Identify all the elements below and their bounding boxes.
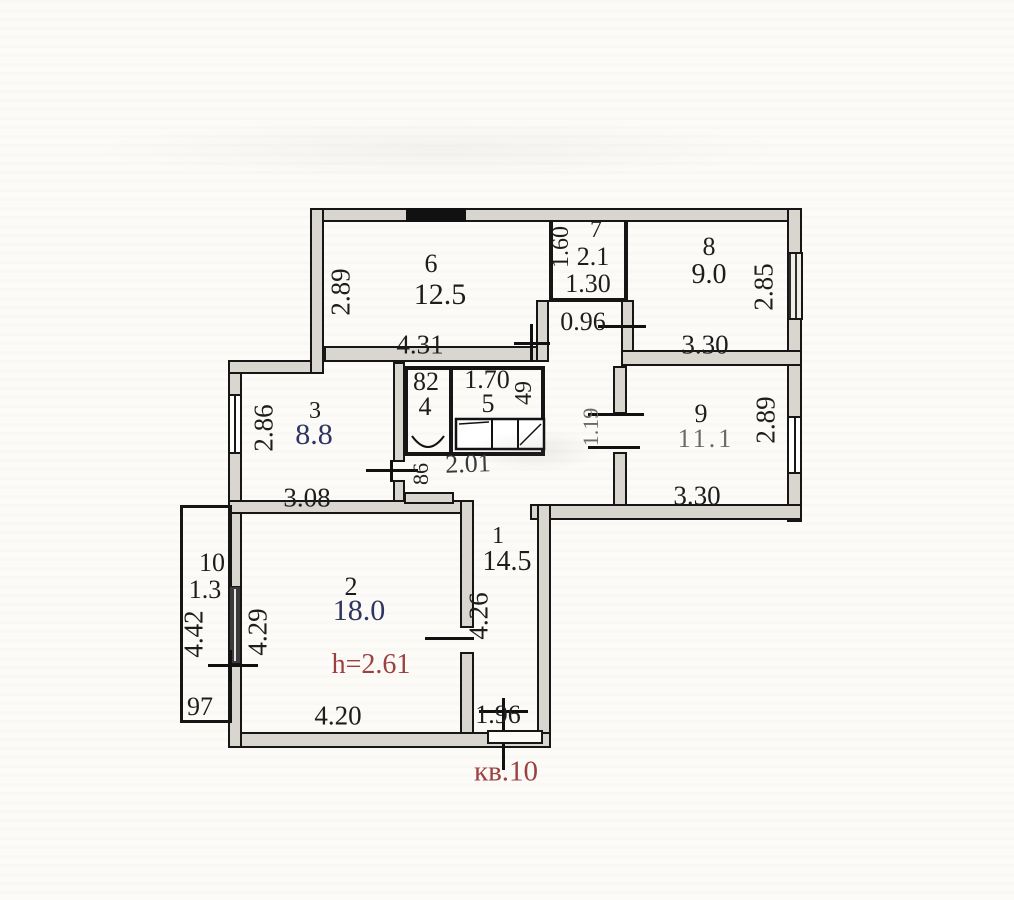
dim-corridor-small: 2.01 <box>445 450 491 478</box>
room-8-number: 8 <box>703 234 716 260</box>
wall-top <box>310 208 802 222</box>
door-tick-room3-vertical <box>390 460 393 482</box>
wall-room7-bottom <box>549 298 628 302</box>
room-9-area: 11.1 <box>678 426 735 452</box>
window-pane <box>234 589 236 662</box>
entry-door-threshold <box>487 730 543 744</box>
wall-room6-left <box>310 208 324 374</box>
window-room9-right <box>787 416 802 474</box>
wall-stub-under-room4 <box>404 492 454 504</box>
room-1-number: 1 <box>492 524 504 548</box>
ceiling-height-label: h=2.61 <box>332 651 411 679</box>
window-room8-right <box>787 252 803 320</box>
dim-room6-bottom: 4.31 <box>396 332 443 359</box>
dim-room8-bottom: 3.30 <box>681 332 728 359</box>
room-3-area: 8.8 <box>295 420 333 450</box>
apartment-number-label: кв.10 <box>474 758 538 787</box>
room-2-area: 18.0 <box>333 596 386 626</box>
wall-corridor1-left-lower <box>460 652 474 734</box>
dim-room5-right: 49 <box>512 381 536 405</box>
window-room6-top <box>406 208 466 222</box>
door-tick-room9-bottom <box>588 446 640 449</box>
door-tick-balcony-vertical <box>229 650 232 682</box>
room-7-number: 7 <box>590 218 602 242</box>
wall-corridor-right <box>537 504 551 748</box>
dim-room1-length: 4.26 <box>466 592 493 639</box>
wall-room9-left-upper <box>613 366 627 414</box>
dim-room9-bottom: 3.30 <box>673 483 720 510</box>
wall-room7-right <box>624 222 628 302</box>
door-tick-balcony-horizontal <box>208 664 258 667</box>
dim-room6-left: 2.89 <box>328 268 355 315</box>
dim-room10-bottom: 97 <box>187 694 213 720</box>
dim-room10-left: 4.42 <box>181 610 208 657</box>
dim-room7-bottom: 1.30 <box>565 271 611 297</box>
room-8-area: 9.0 <box>692 261 727 289</box>
room-1-area: 14.5 <box>483 548 532 576</box>
sink-icon <box>408 434 448 456</box>
dim-room9-right: 2.89 <box>753 396 780 443</box>
dim-room8-right: 2.85 <box>751 263 778 310</box>
wall-bottom-right-section <box>530 504 802 520</box>
wall-room4-room5-divider <box>449 366 453 456</box>
room-6-number: 6 <box>425 251 438 277</box>
dim-room2-left: 4.29 <box>245 608 272 655</box>
floor-plan: 6 12.5 2.89 4.31 1.60 7 2.1 1.30 0.96 8 … <box>0 0 1014 900</box>
window-room3-left <box>228 394 242 454</box>
wall-room9-left-lower <box>613 452 627 506</box>
dim-room2-bottom: 4.20 <box>314 703 361 730</box>
dim-hall-width: 0.96 <box>560 309 606 335</box>
scan-artifact <box>90 120 790 180</box>
room-10-number: 10 <box>199 550 225 576</box>
dim-room1-entry: 1.96 <box>475 702 521 728</box>
window-pane <box>794 418 796 472</box>
wall-hall-left <box>536 300 549 362</box>
window-pane <box>234 396 236 452</box>
room-7-area: 2.1 <box>577 244 610 270</box>
room-10-area: 1.3 <box>189 577 222 603</box>
room-6-area: 12.5 <box>414 280 467 310</box>
dim-room3-left: 2.86 <box>251 404 278 451</box>
dim-room3-bottom: 3.08 <box>283 485 330 512</box>
dim-door-small: 86 <box>410 463 432 485</box>
door-tick-room6-horizontal <box>514 342 550 345</box>
room-5-number: 5 <box>482 391 495 417</box>
dim-room9-door: 1.19 <box>580 408 602 447</box>
dim-room7-left: 1.60 <box>549 226 573 268</box>
room-4-number: 4 <box>419 394 432 420</box>
